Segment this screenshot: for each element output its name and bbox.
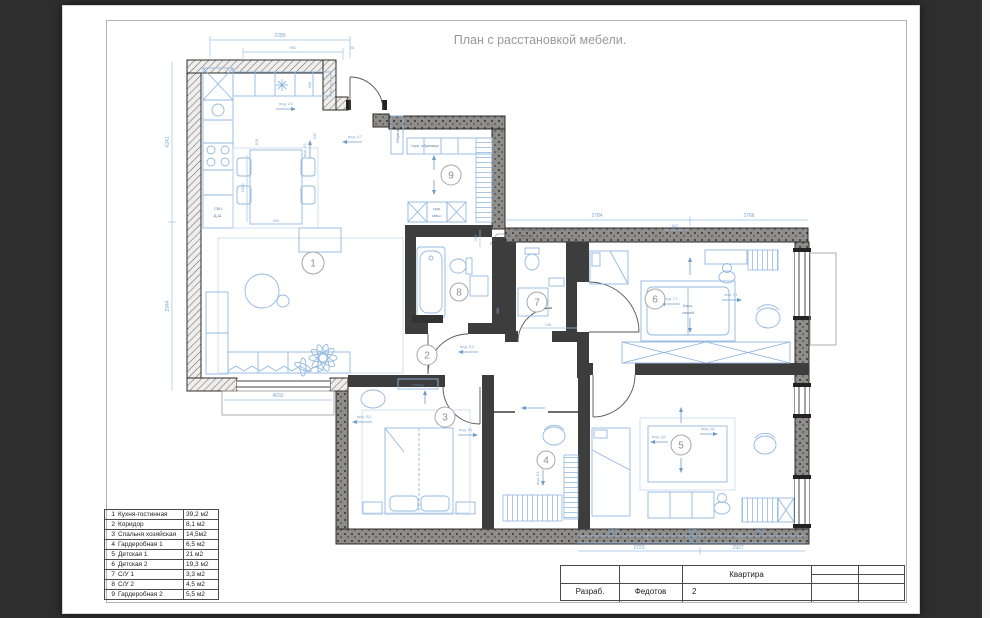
dim-label: 942 [312, 132, 317, 139]
dim-label: 2944 [165, 300, 171, 311]
table-row: 9Гардеробная 25,5 м2 [105, 590, 219, 600]
room-name-cell: 2Коридор [105, 520, 184, 530]
room-area-cell: 14,5м2 [184, 530, 219, 540]
view-label: вид. Е1 [535, 470, 540, 485]
room-number: 6 [652, 295, 658, 306]
view-label: вид. В3 [357, 414, 372, 419]
screenshot-root: { "page": { "title": "План с расстановко… [0, 0, 990, 618]
sheet-number: 2 [682, 583, 811, 600]
dim-label: 380 [495, 307, 500, 314]
dim-label: 900 [757, 529, 766, 535]
dryer-label: суш. [433, 206, 441, 211]
room-number: 5 [678, 441, 684, 452]
view-label: вид. А5 [302, 142, 307, 157]
plant-icon [294, 343, 337, 376]
room-number: 2 [424, 351, 430, 362]
air-hockey-label: хоккей [682, 310, 694, 315]
dim-label: 5070 [688, 537, 699, 543]
view-label: вид. А3 [279, 101, 294, 106]
installation-note-size: 500х1130 [516, 233, 534, 238]
dim-label: 748 [545, 322, 552, 327]
role-label: Разраб. [561, 583, 619, 600]
title-block: Квартира Разраб. Федотов 2 [560, 565, 905, 601]
room-area-cell: 39,2 м2 [184, 510, 219, 520]
dim-label: 2285 [274, 33, 285, 39]
dim-label: 622 [672, 223, 679, 228]
table-row: 8С/У 24,5 м2 [105, 580, 219, 590]
table-row: 7С/У 13,3 м2 [105, 570, 219, 580]
room-number: 4 [543, 456, 549, 467]
table-row: 4Гардеробная 16,5 м2 [105, 540, 219, 550]
room-name-cell: 6Детская 2 [105, 560, 184, 570]
table-row: 6Детская 219,3 м2 [105, 560, 219, 570]
room-number: 3 [442, 413, 448, 424]
dim-label: 4030 [272, 393, 283, 399]
room-legend-table: 1Кухня-гостинная39,2 м2 2Коридор8,1 м2 3… [104, 509, 219, 600]
room-area-cell: 6,5 м2 [184, 540, 219, 550]
view-label: вид. В1 [459, 427, 474, 432]
windows [222, 248, 836, 528]
dim-label: 878 [254, 138, 259, 145]
room-name-cell: 8С/У 2 [105, 580, 184, 590]
view-label: вид. Г2 [664, 296, 678, 301]
dim-label: 2766 [743, 213, 754, 219]
room-name-cell: 9Гардеробная 2 [105, 590, 184, 600]
view-label: вид. Б4 [460, 344, 475, 349]
room-area-cell: 5,5 м2 [184, 590, 219, 600]
room-area-cell: 3,3 м2 [184, 570, 219, 580]
dim-label: 900 [290, 45, 297, 50]
room-number: 1 [310, 259, 316, 270]
ceiling-light-icon [276, 79, 288, 91]
room-name-cell: 3Спальня хозяйская [105, 530, 184, 540]
shoe-cabinet-label: Обувная [395, 127, 400, 143]
room-name-cell: 7С/У 1 [105, 570, 184, 580]
developer-name: Федотов [619, 583, 682, 600]
dim-label: 4241 [165, 136, 171, 147]
room-number: 7 [534, 298, 540, 309]
room-number: 9 [448, 171, 454, 182]
table-row: 5Детская 121 м2 [105, 550, 219, 560]
room-name-cell: 4Гардеробная 1 [105, 540, 184, 550]
room-area-cell: 8,1 м2 [184, 520, 219, 530]
table-row: 3Спальня хозяйская14,5м2 [105, 530, 219, 540]
installation-note: Инсталляция Grohe Rapid SL 38772001 [513, 227, 587, 232]
room-name-cell: 5Детская 1 [105, 550, 184, 560]
dim-label: 1256 [607, 529, 618, 535]
dim-label: 1500 [240, 183, 245, 193]
dim-label: 96 [350, 45, 355, 50]
room-area-cell: 21 м2 [184, 550, 219, 560]
dim-label: 2927 [732, 545, 743, 551]
dishwasher-label: Д.Ш. [214, 213, 223, 218]
dryer-label: маш. [432, 213, 441, 218]
view-label: вид. Д1 [701, 426, 716, 431]
view-label: вид. Г1 [724, 292, 738, 297]
dim-label: 3651 [688, 529, 699, 535]
dim-label: 900 [273, 218, 280, 223]
microwave-label: СВЧ [214, 206, 222, 211]
room-area-cell: 19,3 м2 [184, 560, 219, 570]
pouf-label: пуф. обувница [411, 143, 439, 148]
table-row: 2Коридор8,1 м2 [105, 520, 219, 530]
room-number: 8 [456, 288, 462, 299]
table-row: 1Кухня-гостинная39,2 м2 [105, 510, 219, 520]
project-name: Квартира [682, 566, 811, 583]
dim-label: 2784 [591, 213, 602, 219]
view-label: вид. Д2 [652, 434, 667, 439]
dresser-label: комод [412, 382, 424, 387]
room-name-cell: 1Кухня-гостинная [105, 510, 184, 520]
air-hockey-label: Аэро- [683, 303, 694, 308]
dim-label: 200 [473, 234, 478, 241]
dim-label: 2723 [633, 545, 644, 551]
dim-label: 808 [307, 81, 312, 88]
room-area-cell: 4,5 м2 [184, 580, 219, 590]
view-label: вид. А7 [348, 134, 363, 139]
